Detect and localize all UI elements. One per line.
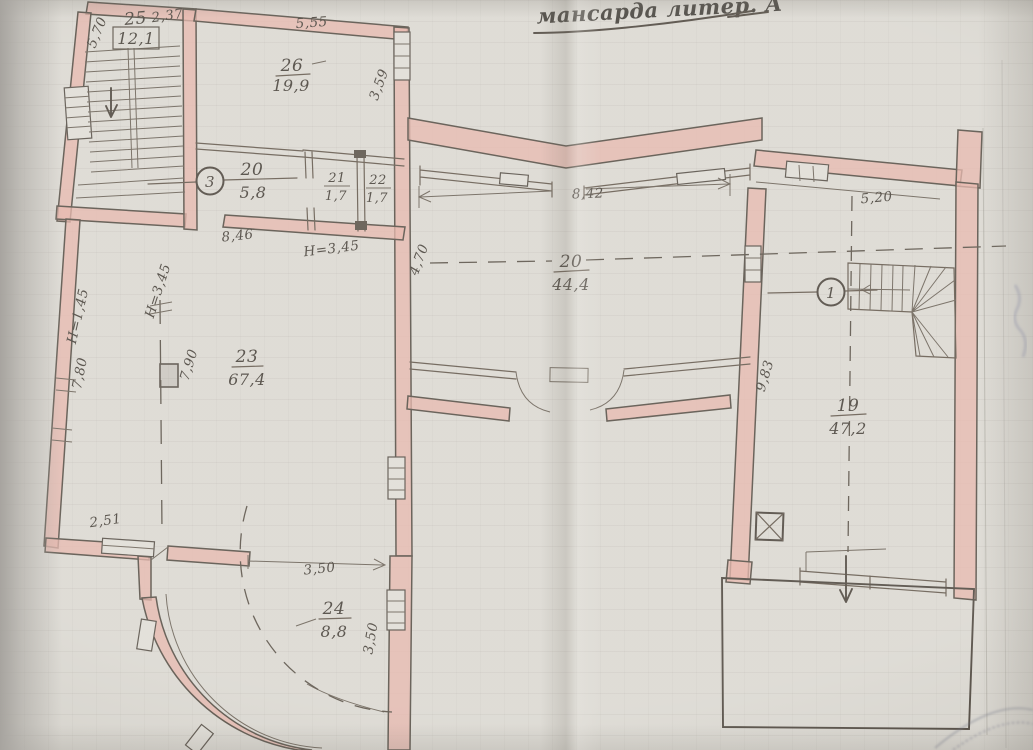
stair-direction-arrow: [106, 88, 117, 117]
partition-corridor-top: [196, 143, 303, 157]
door-arc-room24: [307, 684, 384, 712]
height-3-45-a: Н=3,45: [302, 238, 361, 261]
door-arcs: [151, 370, 624, 712]
height-3-45-b: Н=3,45: [142, 262, 175, 321]
stair-walk-line: [848, 289, 910, 290]
room-19-number: 19: [837, 396, 860, 416]
room-22-number: 22: [368, 173, 387, 188]
dashed-centerline-right: [586, 246, 1006, 260]
window-main-wall-2: [387, 590, 405, 630]
room-23-number: 23: [235, 347, 259, 367]
wall-curve-start-stub: [138, 556, 151, 600]
room-20-area: 44,4: [551, 275, 590, 294]
room-label-21: 21 1,7: [324, 171, 350, 204]
room-label-23: 23 67,4: [228, 347, 266, 389]
room-19-area: 47,2: [828, 419, 867, 438]
floor-plan-drawing: 3 1 мансарда литер. А 25 12,1 26 19,9: [0, 0, 1033, 750]
dim-8-42: 8,42: [572, 185, 605, 202]
room-20-number: 20: [559, 252, 583, 272]
window-frame-left: [500, 173, 529, 186]
room-25-area: 12,1: [117, 29, 155, 48]
scanned-floor-plan-photo: 3 1 мансарда литер. А 25 12,1 26 19,9: [0, 0, 1033, 750]
partition-rooms2122-top: [303, 150, 404, 166]
faint-handwriting-mark: [1015, 285, 1026, 357]
stairs-top-left: [76, 46, 185, 198]
window-curve-1: [137, 619, 157, 651]
divider-block-bottom: [355, 221, 367, 230]
room-21-area: 1,7: [325, 189, 347, 204]
wall-bay-top: [408, 118, 762, 168]
window-curve-2: [185, 724, 213, 750]
dim-7-80: 7,80: [69, 356, 91, 391]
landing-center-pier: [550, 368, 588, 383]
window-main-wall-1: [388, 457, 405, 499]
window-stairwell: [64, 86, 92, 140]
wall-curved-room24: [142, 597, 312, 750]
wall-main-vertical-lower: [388, 556, 412, 750]
window-room26-right: [394, 32, 410, 80]
wall-landing-stub-left: [407, 396, 510, 421]
exit-down-arrow: [840, 556, 852, 602]
stair-stringer: [128, 48, 138, 168]
room-20s-area: 5,8: [240, 183, 267, 202]
winder-stairs-right: [848, 263, 956, 358]
room-20s-number: 20: [240, 160, 264, 180]
wall-curved-inner-face: [166, 594, 322, 748]
dashed-vertical-room23: [160, 300, 162, 532]
dashed-vertical-right: [848, 196, 852, 552]
room-26-area: 19,9: [272, 76, 310, 95]
section-marker-1-number: 1: [826, 284, 836, 302]
section-marker-1: 1: [768, 279, 877, 306]
label-dash-26: [312, 61, 326, 64]
dim-3-59: 3,59: [366, 67, 392, 103]
room-label-24: 24 8,8: [319, 599, 351, 641]
dashed-arc-room24: [240, 506, 392, 712]
page-edge-2: [1002, 60, 1006, 748]
landing-wall-left: [410, 362, 516, 379]
room-24-area: 8,8: [321, 622, 348, 641]
wall-room19-bottom-stub: [726, 560, 752, 584]
shaft-symbol: [756, 513, 784, 541]
page-edge-1: [983, 128, 987, 735]
dim-5-20: 5,20: [860, 189, 893, 208]
dim-8-46: 8,46: [221, 226, 255, 245]
label-dash-24: [296, 619, 316, 626]
door-arc-landing-right: [590, 370, 624, 410]
dashed-centerline-left: [430, 261, 552, 263]
window-right-section-top: [785, 161, 828, 182]
door-arc-landing-left: [516, 372, 550, 412]
dim-3-50-horizontal: 3,50: [303, 559, 337, 578]
room-21-number: 21: [327, 171, 346, 186]
wall-stairwell-right: [183, 9, 197, 230]
room-22-area: 1,7: [366, 191, 388, 206]
partition-room21-left: [305, 152, 315, 230]
column-room23: [160, 364, 178, 387]
dim-7-90: 7,90: [177, 347, 202, 382]
divider-block-top: [354, 150, 366, 158]
wall-right-outer: [954, 182, 978, 600]
dim-2-37: 2,37: [149, 6, 184, 26]
dim-3-50-vertical: 3,50: [360, 621, 381, 655]
window-room23-bottom: [102, 538, 155, 557]
wall-room23-bottom-b: [167, 546, 250, 566]
partition-rooms2122-divider: [357, 155, 365, 231]
title-block: мансарда литер. А: [534, 0, 783, 33]
dim-2-51: 2,51: [87, 511, 122, 531]
room-label-20-main: 20 44,4: [551, 252, 590, 294]
landing-wall-right: [624, 357, 750, 376]
room-23-area: 67,4: [228, 370, 266, 389]
room-label-19: 19 47,2: [828, 396, 867, 438]
dim-5-55: 5,55: [295, 14, 328, 32]
right-section-inner-face: [756, 182, 940, 199]
dashed-lines: [160, 196, 1006, 712]
section-marker-3-number: 3: [205, 173, 215, 191]
section-marker-3: 3: [148, 168, 297, 195]
room-26-number: 26: [280, 56, 304, 76]
room-label-26: 26 19,9: [272, 56, 310, 95]
window-room19-left: [745, 246, 761, 282]
window-frame-right: [677, 169, 726, 185]
wall-right-section-top: [754, 150, 962, 186]
wall-right-section-jog: [956, 130, 982, 188]
wall-landing-stub-right: [606, 395, 731, 421]
room-label-20-small: 20 5,8: [240, 160, 267, 202]
room-label-22: 22 1,7: [366, 173, 391, 206]
page-edge-lines: [983, 60, 1026, 748]
terrace-outline: [722, 578, 974, 729]
room-24-number: 24: [322, 599, 346, 619]
